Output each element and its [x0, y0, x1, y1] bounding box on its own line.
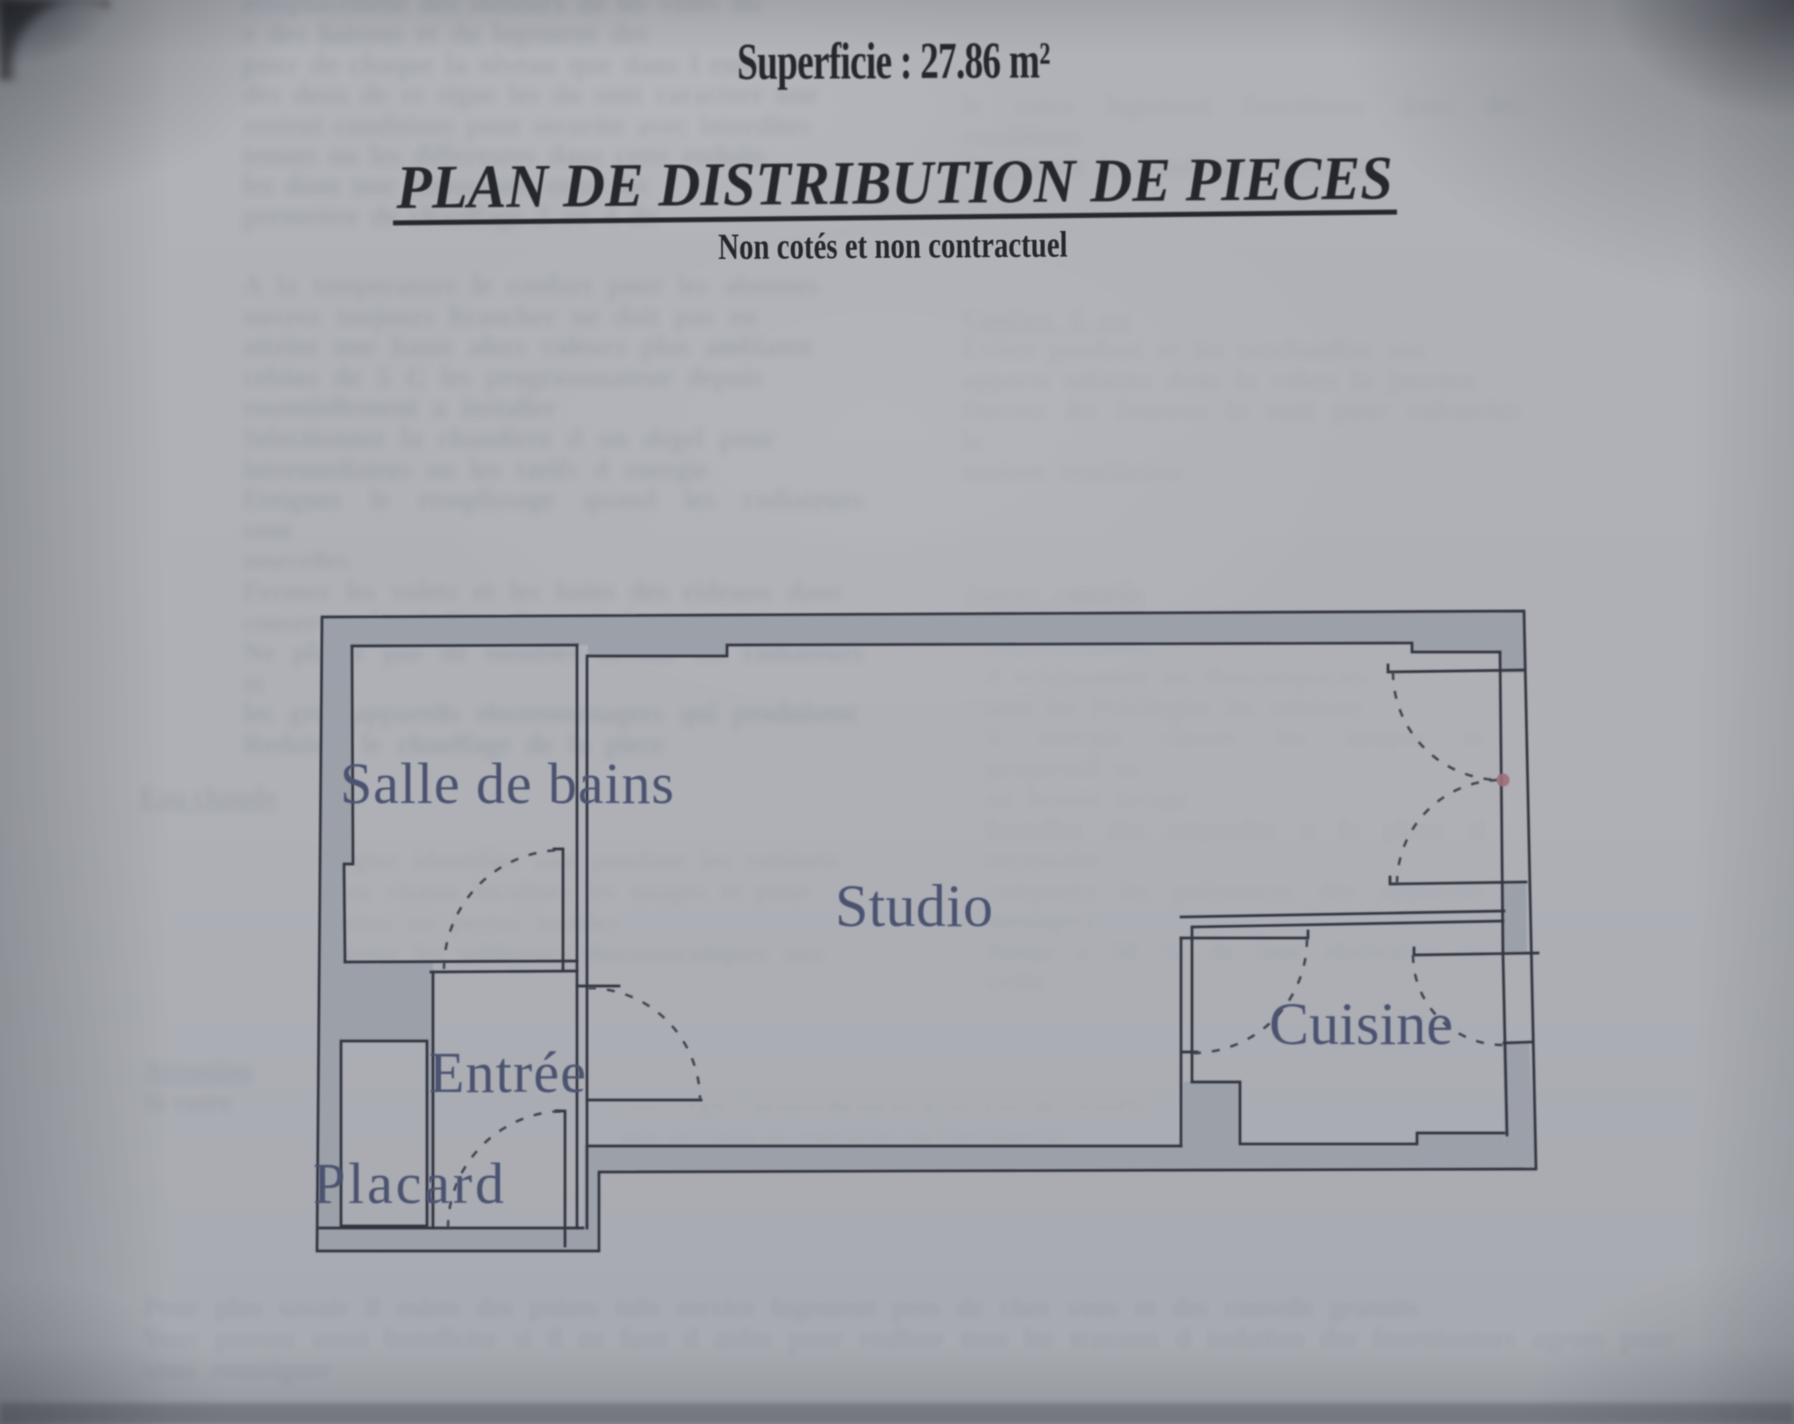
svg-text:Placard: Placard	[313, 1151, 504, 1216]
svg-text:Studio: Studio	[835, 873, 993, 939]
svg-text:Entrée: Entrée	[429, 1040, 586, 1105]
svg-text:Cuisine: Cuisine	[1269, 991, 1453, 1057]
svg-text:Salle de bains: Salle de bains	[340, 751, 674, 816]
